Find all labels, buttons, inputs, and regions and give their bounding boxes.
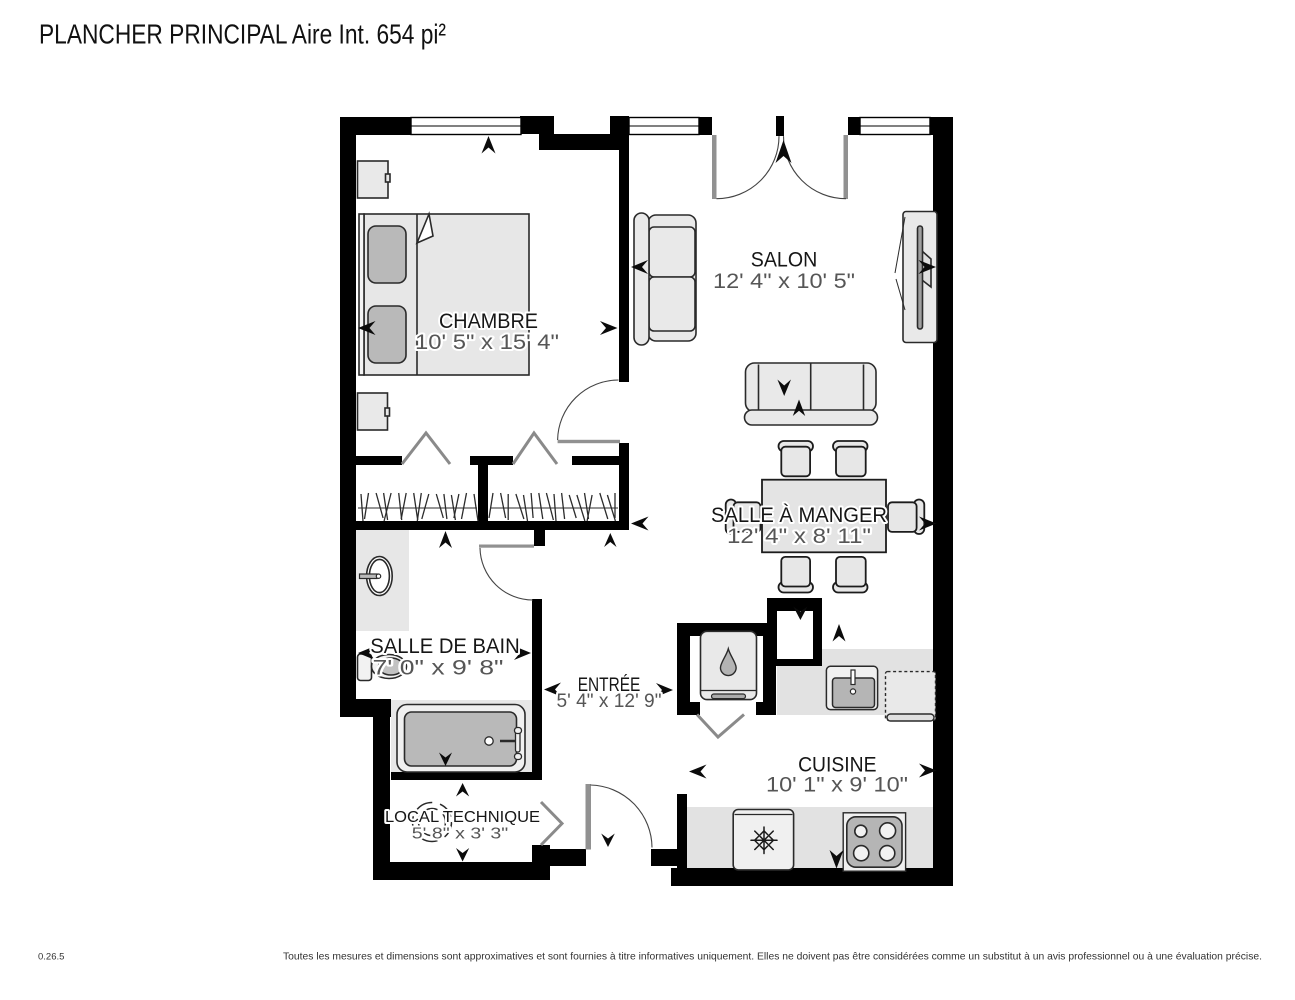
svg-text:12' 4" x 10' 5": 12' 4" x 10' 5" (713, 270, 855, 293)
svg-text:7' 0" x 9' 8": 7' 0" x 9' 8" (373, 657, 504, 680)
svg-text:CHAMBRE: CHAMBRE (439, 309, 538, 333)
svg-text:0.26.5: 0.26.5 (38, 952, 64, 963)
svg-text:10' 5" x 15' 4": 10' 5" x 15' 4" (415, 331, 559, 354)
svg-text:12' 4" x 8' 11": 12' 4" x 8' 11" (727, 525, 871, 548)
svg-text:SALON: SALON (751, 248, 818, 272)
svg-text:SALLE DE BAIN: SALLE DE BAIN (370, 634, 520, 658)
svg-text:10' 1" x 9' 10": 10' 1" x 9' 10" (766, 774, 908, 797)
svg-text:5' 4" x 12' 9": 5' 4" x 12' 9" (557, 691, 662, 712)
svg-text:LOCAL TECHNIQUE: LOCAL TECHNIQUE (385, 809, 540, 826)
svg-text:SALLE À MANGER: SALLE À MANGER (711, 502, 887, 527)
svg-text:PLANCHER PRINCIPAL Aire Int. 6: PLANCHER PRINCIPAL Aire Int. 654 pi² (39, 19, 446, 50)
svg-text:Toutes les mesures et dimensio: Toutes les mesures et dimensions sont ap… (283, 951, 1262, 963)
svg-text:5' 8" x 3' 3": 5' 8" x 3' 3" (412, 826, 509, 843)
